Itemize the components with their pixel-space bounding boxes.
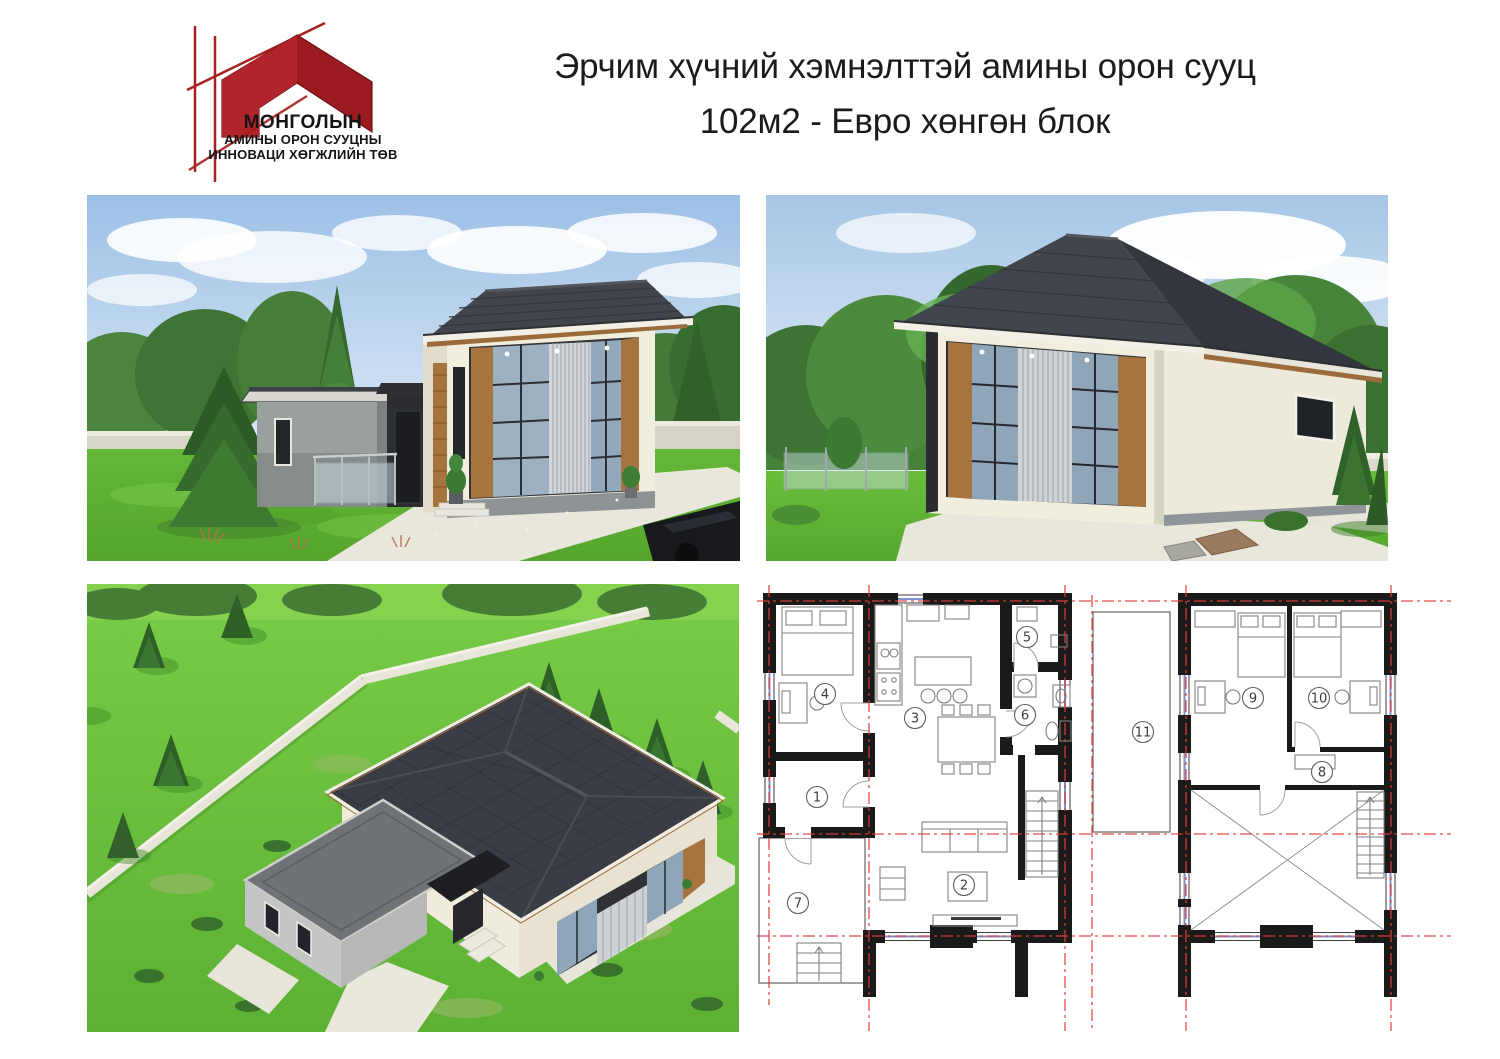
org-logo-mark (185, 20, 435, 190)
svg-text:10: 10 (1311, 692, 1328, 707)
brochure-page: МОНГОЛЫН АМИНЫ ОРОН СУУЦНЫ ИННОВАЦИ ХӨГЖ… (0, 0, 1500, 1059)
room-label-3: 3 (905, 708, 926, 729)
room-label-11: 11 (1133, 722, 1154, 743)
page-title-line2: 102м2 - Евро хөнгөн блок (430, 95, 1380, 150)
svg-text:4: 4 (821, 688, 829, 703)
room-label-7: 7 (788, 893, 809, 914)
org-name-line2: АМИНЫ ОРОН СУУЦНЫ (185, 133, 421, 148)
svg-text:3: 3 (911, 712, 919, 727)
garage-outline (759, 838, 865, 983)
svg-text:6: 6 (1021, 709, 1029, 724)
svg-text:8: 8 (1318, 766, 1326, 781)
terrace-outline (1093, 612, 1170, 832)
second-floor-stairs (1357, 792, 1384, 878)
page-title-line1: Эрчим хүчний хэмнэлттэй амины орон сууц (430, 40, 1380, 95)
svg-text:2: 2 (960, 879, 968, 894)
org-name-line1: МОНГОЛЫН (185, 112, 421, 133)
render-aerial-view-image (87, 584, 739, 1032)
first-floor-plan: 1 2 3 4 5 6 7 (759, 585, 1072, 1031)
room-label-8: 8 (1312, 762, 1333, 783)
floor-plans: 1 2 3 4 5 6 7 (755, 585, 1455, 1033)
page-title: Эрчим хүчний хэмнэлттэй амины орон сууц … (430, 40, 1380, 149)
room-label-2: 2 (954, 875, 975, 896)
room-label-4: 4 (815, 684, 836, 705)
room-label-10: 10 (1309, 688, 1330, 709)
svg-text:1: 1 (813, 791, 821, 806)
floor-plans-drawing: 1 2 3 4 5 6 7 (755, 585, 1455, 1033)
svg-text:11: 11 (1135, 726, 1152, 741)
void-cross (1191, 790, 1384, 930)
shared-axes (757, 601, 1451, 936)
render-front-view-image (87, 195, 740, 561)
render-rear-view-image (766, 195, 1388, 561)
svg-text:5: 5 (1023, 631, 1031, 646)
org-name: МОНГОЛЫН АМИНЫ ОРОН СУУЦНЫ ИННОВАЦИ ХӨГЖ… (185, 112, 421, 162)
room-label-6: 6 (1015, 705, 1036, 726)
org-logo: МОНГОЛЫН АМИНЫ ОРОН СУУЦНЫ ИННОВАЦИ ХӨГЖ… (185, 20, 435, 190)
render-rear-view (766, 195, 1388, 561)
render-front-view (87, 195, 740, 561)
render-aerial-view (87, 584, 739, 1032)
second-floor-plan: 8 9 10 11 (1092, 585, 1397, 1031)
first-floor-furniture (779, 605, 1071, 926)
svg-text:9: 9 (1249, 692, 1257, 707)
svg-text:7: 7 (794, 897, 802, 912)
second-floor-axes (1092, 585, 1391, 1031)
org-name-line3: ИННОВАЦИ ХӨГЖЛИЙН ТӨВ (185, 148, 421, 163)
garage-steps (797, 943, 841, 983)
room-label-1: 1 (807, 787, 828, 808)
room-label-9: 9 (1243, 688, 1264, 709)
room-label-5: 5 (1017, 627, 1038, 648)
